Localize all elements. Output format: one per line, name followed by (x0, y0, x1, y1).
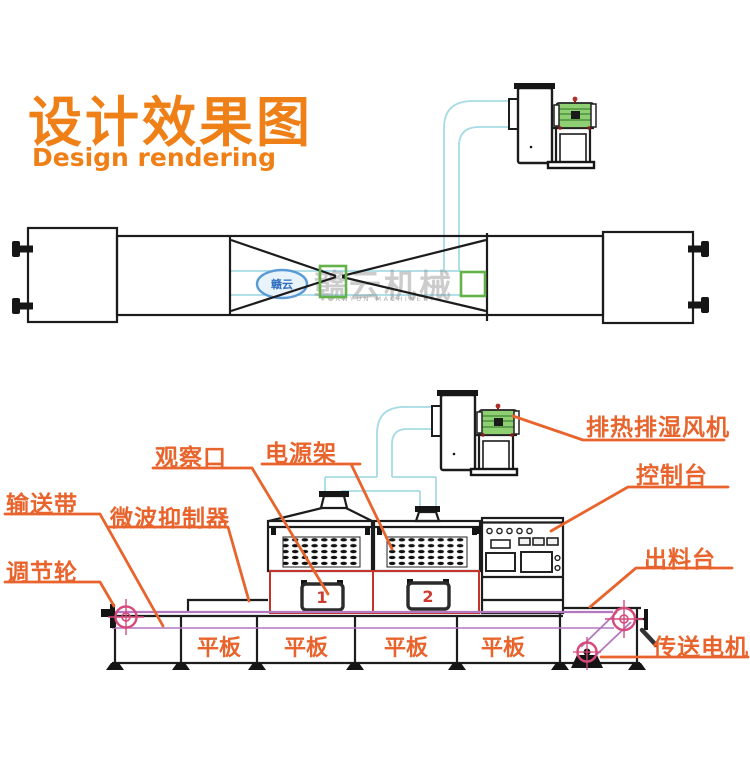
design-rendering-page: 赣云 赣云机械 GANYUN MACHINERY (0, 0, 750, 772)
label-conveyor-belt: 输送带 (6, 485, 78, 519)
control-console (476, 518, 563, 613)
watermark-logo-text: 赣云 (271, 277, 293, 291)
label-plate-4: 平板 (481, 630, 525, 662)
console-knob[interactable] (555, 566, 560, 571)
top-view-fan (509, 83, 596, 168)
label-plate-1: 平板 (197, 630, 241, 662)
conveyor-belt (112, 612, 631, 659)
heating-cabinets (268, 491, 480, 571)
console-buttons[interactable] (487, 528, 532, 533)
side-view-fan (432, 390, 519, 475)
vent-grid-left (283, 537, 360, 567)
label-microwave-suppressor: 微波抑制器 (110, 499, 230, 533)
label-control-console: 控制台 (636, 456, 708, 490)
leader-microwave-suppressor (109, 527, 249, 601)
label-adjust-wheel: 调节轮 (6, 553, 78, 587)
label-exhaust-fan: 排热排湿风机 (586, 408, 730, 442)
exhaust-hood (269, 508, 372, 521)
vent-grid-right (387, 537, 467, 567)
page-subtitle: Design rendering (32, 143, 276, 172)
heating-chamber-section: 1 2 (270, 571, 479, 613)
window-number-2: 2 (422, 587, 433, 606)
adjust-wheel[interactable] (101, 599, 144, 635)
console-switches[interactable] (519, 538, 558, 545)
label-conveyor-motor: 传送电机 (653, 628, 749, 662)
leader-control-console (551, 487, 728, 531)
console-display-left (486, 553, 515, 571)
console-display-right (521, 552, 552, 572)
label-plate-2: 平板 (284, 630, 328, 662)
label-observation-port: 观察口 (155, 438, 227, 472)
console-knob[interactable] (555, 556, 560, 561)
label-plate-3: 平板 (384, 630, 428, 662)
discharge-table (563, 608, 656, 645)
label-discharge-table: 出料台 (644, 540, 716, 574)
label-power-rack: 电源架 (265, 434, 337, 468)
